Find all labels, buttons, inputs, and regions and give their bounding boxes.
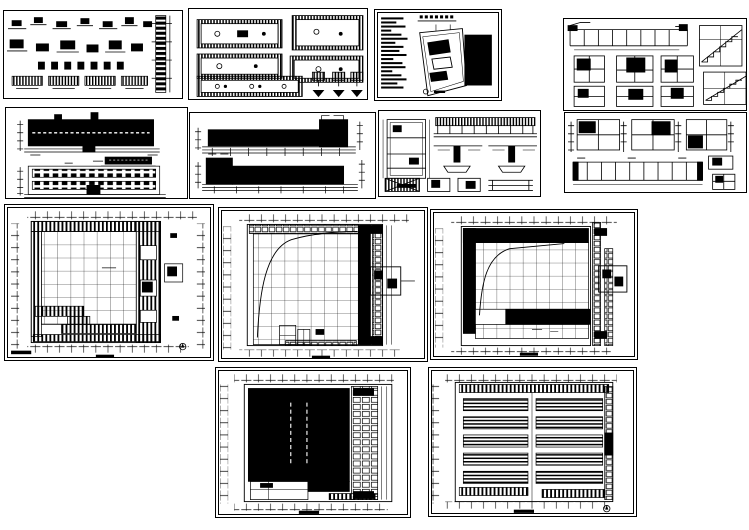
sheet-title-mark <box>514 510 534 513</box>
building-elevations-sheet-1[interactable] <box>5 107 188 199</box>
sheet-title-mark <box>96 355 114 358</box>
wall-sections-sheet[interactable] <box>564 112 747 193</box>
elevations-2-drawing <box>190 113 375 198</box>
floor-plan-1-drawing <box>5 205 213 360</box>
roof-framing-plan-sheet[interactable] <box>428 367 637 517</box>
sheet-title-mark <box>520 353 538 356</box>
beam-plans-drawing <box>189 9 367 99</box>
roof-plan-and-beam-sections-sheet[interactable] <box>378 110 541 197</box>
site-plan-drawing <box>375 10 501 100</box>
hall-floor-plan-drawing <box>216 368 410 517</box>
wall-sections-drawing <box>565 113 746 192</box>
floor-plan-3-drawing <box>431 210 637 359</box>
beam-plan-details-sheet[interactable] <box>188 8 368 100</box>
floor-plan-2-drawing <box>219 208 427 361</box>
sheet-title-mark <box>299 511 319 514</box>
cad-drawing-workspace <box>0 0 749 530</box>
structural-details-sheet[interactable] <box>3 10 183 99</box>
hall-floor-plan-sheet[interactable] <box>215 367 411 518</box>
elevations-1-drawing <box>6 108 187 198</box>
sections-drawing <box>564 19 746 110</box>
structural-details-drawing <box>4 11 182 98</box>
floor-plan-sheet-2[interactable] <box>218 207 428 362</box>
roof-framing-drawing <box>429 368 636 516</box>
floor-plan-sheet-3[interactable] <box>430 209 638 360</box>
sections-and-stair-details-sheet[interactable] <box>563 18 747 111</box>
roof-details-drawing <box>379 111 540 196</box>
building-elevations-sheet-2[interactable] <box>189 112 376 199</box>
sheet-title-mark <box>312 356 330 359</box>
floor-plan-sheet-1[interactable] <box>4 204 214 361</box>
site-plan-and-notes-sheet[interactable] <box>374 9 502 101</box>
